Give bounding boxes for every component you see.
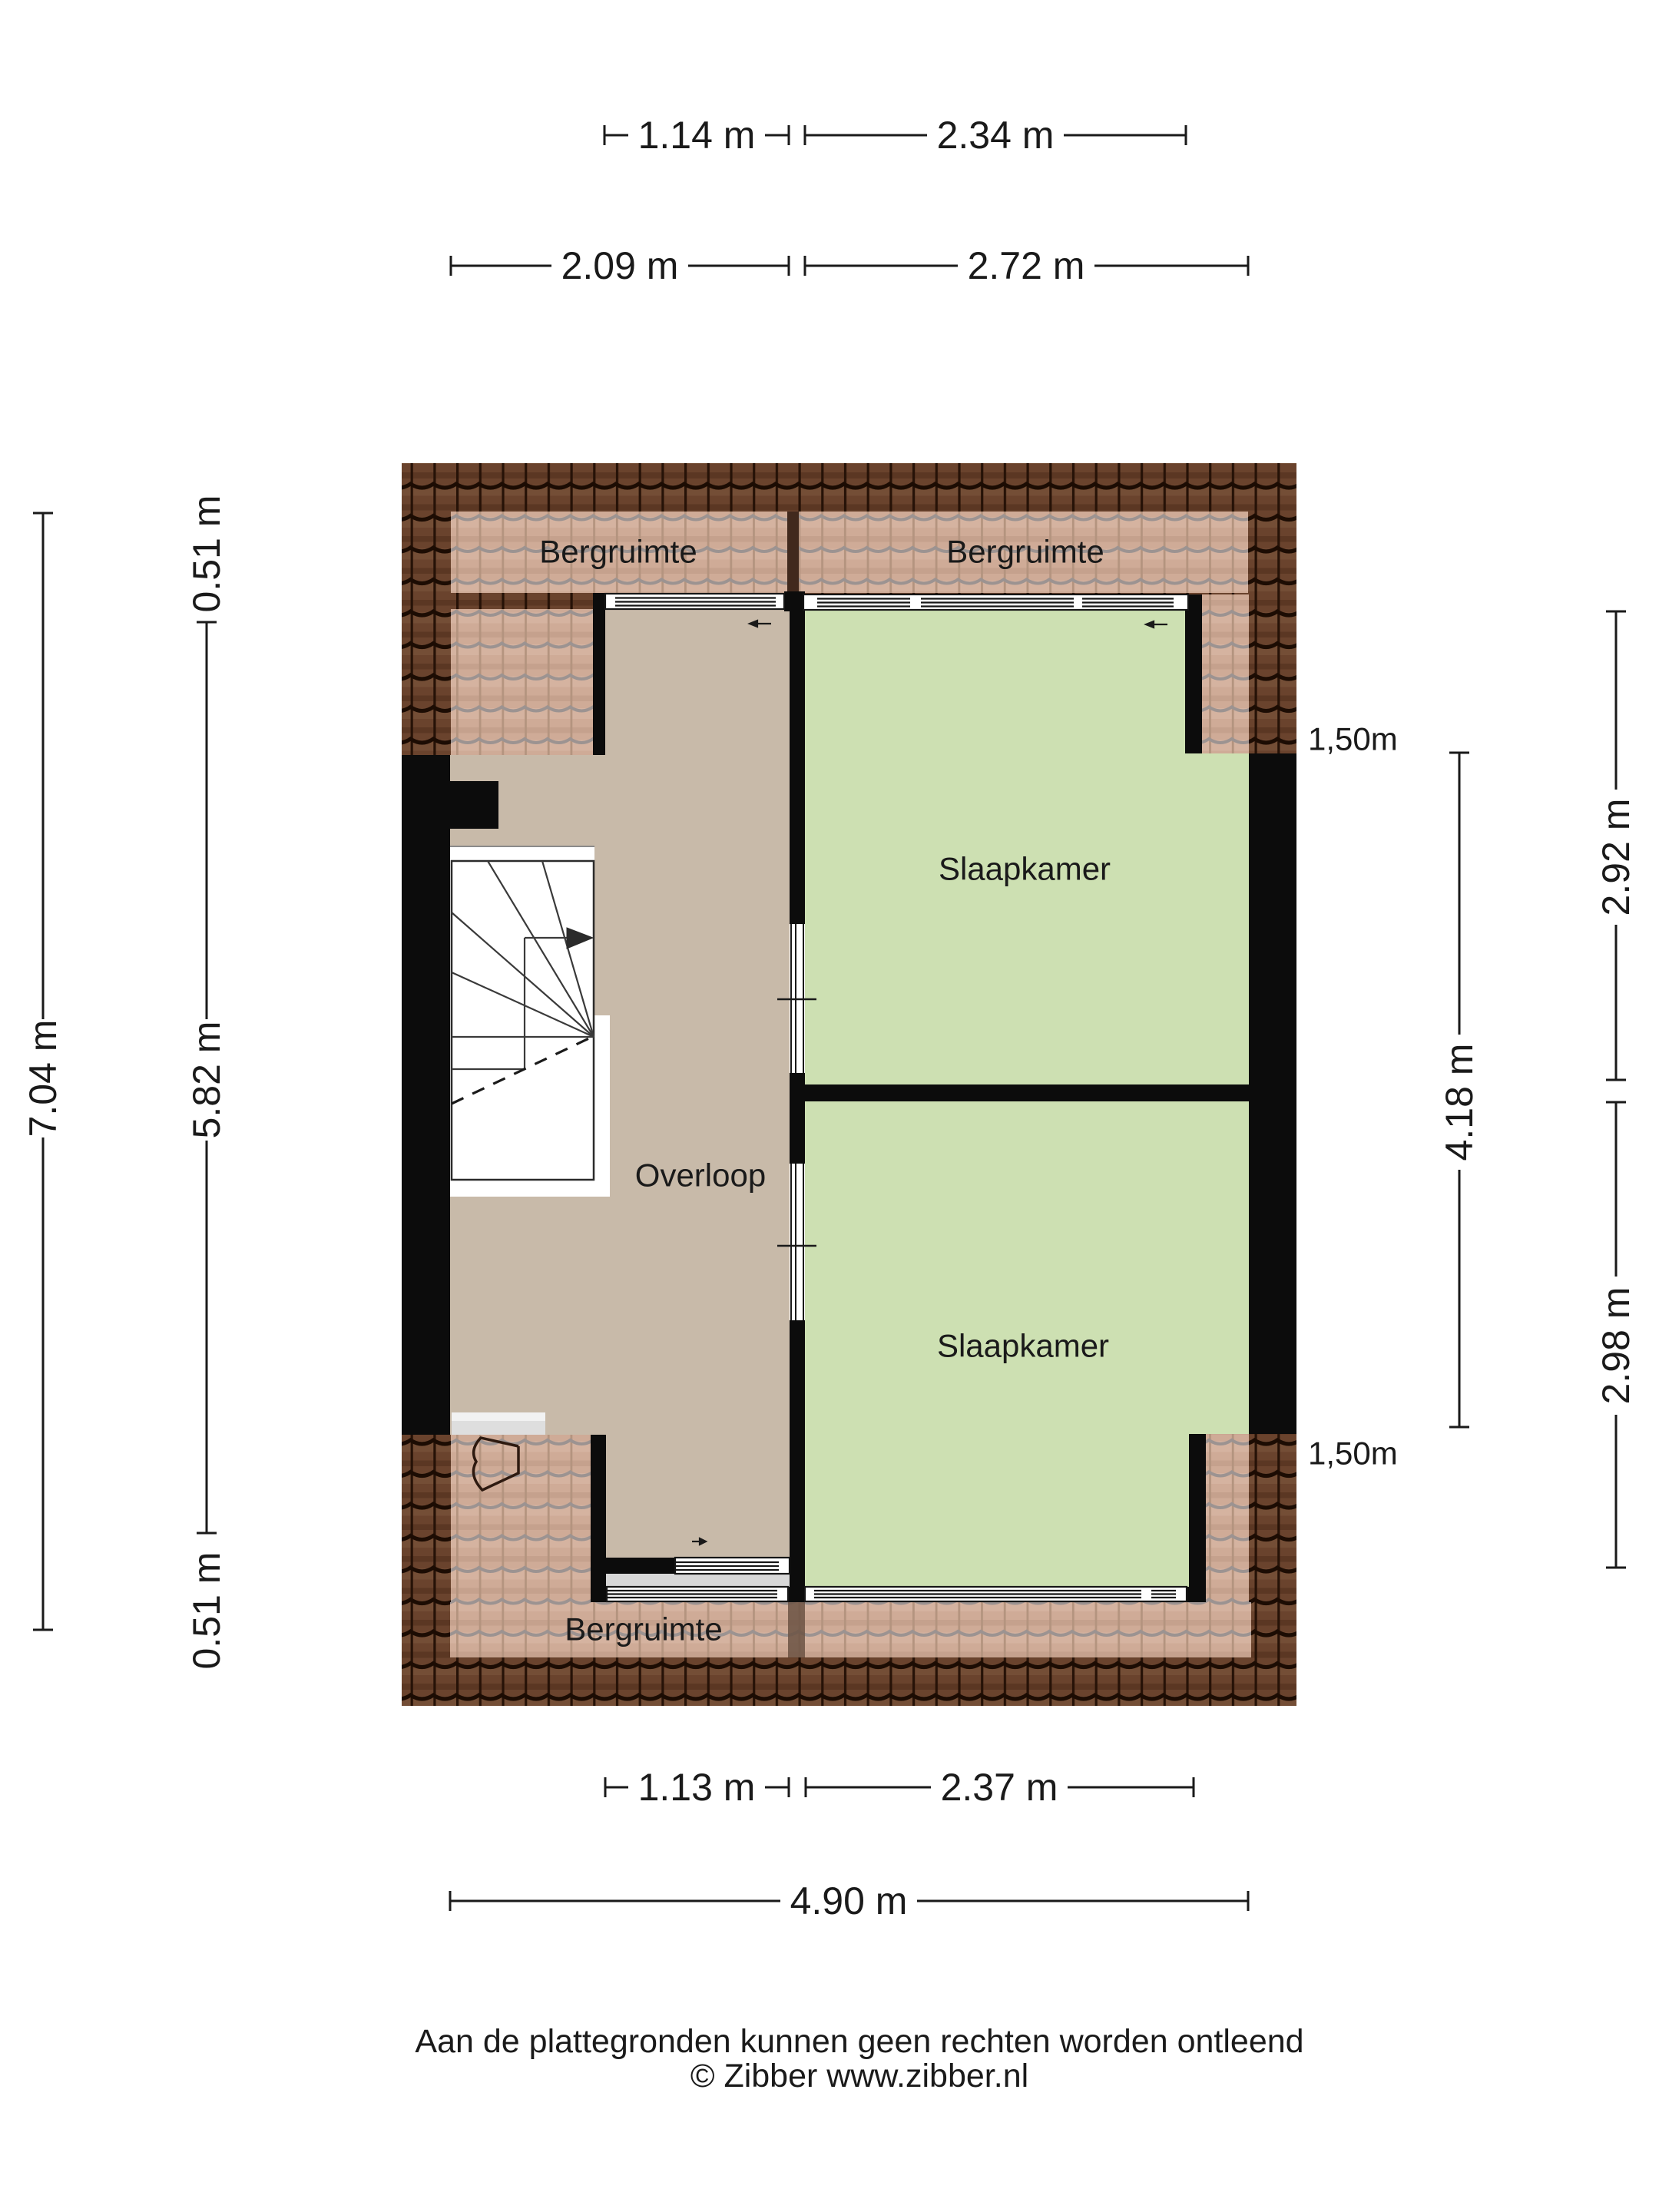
svg-text:4.18 m: 4.18 m: [1438, 1044, 1481, 1161]
svg-text:1,50m: 1,50m: [1308, 721, 1398, 757]
svg-text:Bergruimte: Bergruimte: [565, 1611, 722, 1647]
svg-text:2.98 m: 2.98 m: [1594, 1287, 1637, 1405]
svg-text:Overloop: Overloop: [635, 1157, 766, 1194]
svg-text:Bergruimte: Bergruimte: [946, 534, 1104, 570]
svg-text:2.72 m: 2.72 m: [968, 244, 1085, 287]
svg-text:2.09 m: 2.09 m: [561, 244, 679, 287]
svg-text:© Zibber www.zibber.nl: © Zibber www.zibber.nl: [690, 2058, 1028, 2094]
svg-text:Bergruimte: Bergruimte: [539, 534, 697, 570]
svg-text:4.90 m: 4.90 m: [790, 1879, 908, 1922]
svg-text:7.04 m: 7.04 m: [22, 1020, 65, 1137]
svg-text:Slaapkamer: Slaapkamer: [937, 1328, 1109, 1364]
svg-text:1.14 m: 1.14 m: [638, 114, 756, 157]
svg-text:2.34 m: 2.34 m: [937, 114, 1055, 157]
svg-text:0.51 m: 0.51 m: [185, 495, 228, 613]
svg-text:1.13 m: 1.13 m: [638, 1766, 756, 1809]
svg-text:1,50m: 1,50m: [1308, 1435, 1398, 1472]
svg-text:2.37 m: 2.37 m: [941, 1766, 1058, 1809]
svg-text:Slaapkamer: Slaapkamer: [939, 851, 1111, 887]
svg-text:5.82 m: 5.82 m: [185, 1022, 228, 1139]
svg-text:0.51 m: 0.51 m: [185, 1552, 228, 1670]
svg-text:Aan de plattegronden kunnen ge: Aan de plattegronden kunnen geen rechten…: [415, 2023, 1303, 2060]
svg-text:2.92 m: 2.92 m: [1594, 799, 1637, 916]
